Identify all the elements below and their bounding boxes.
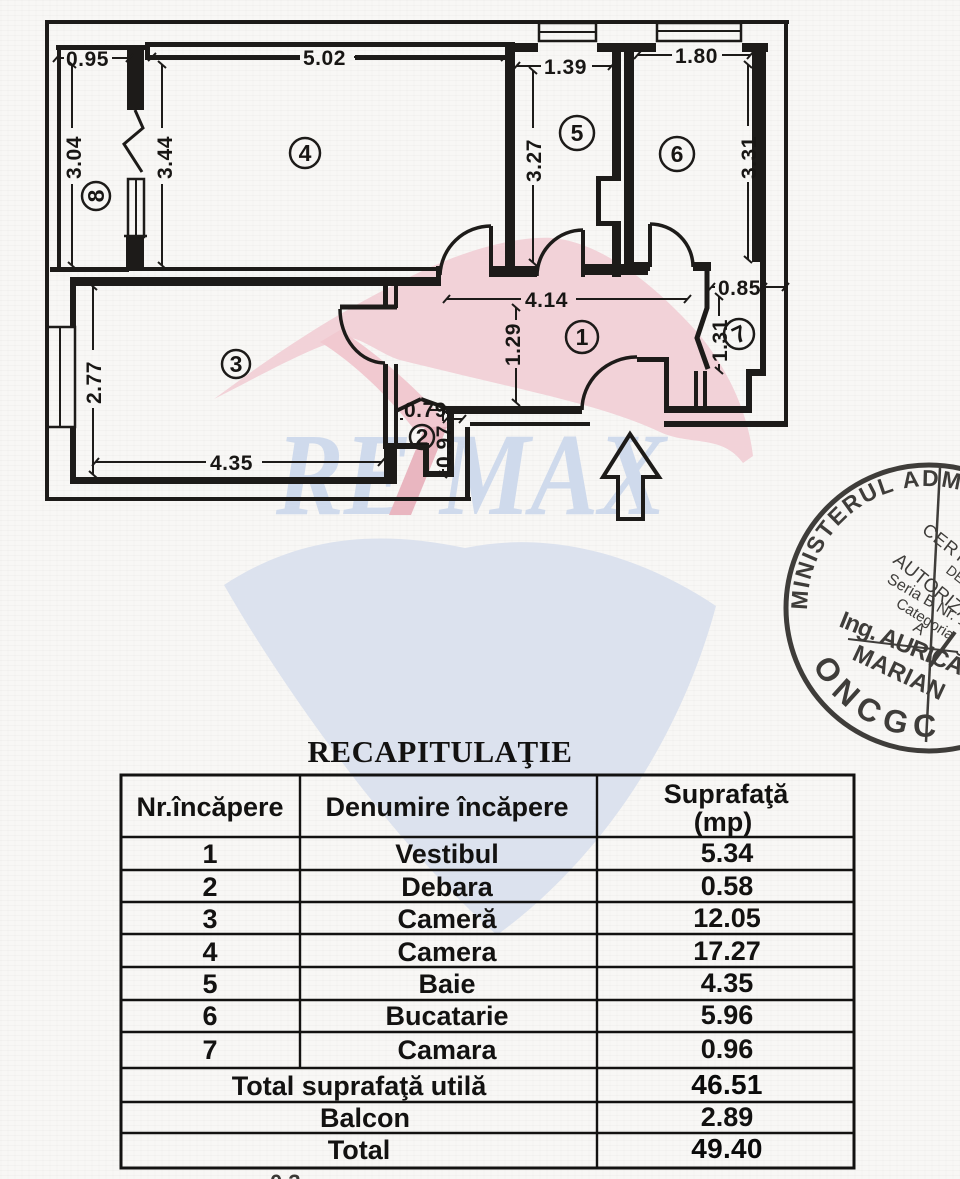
svg-text:1.29: 1.29 [502,323,525,366]
svg-text:6: 6 [671,141,684,167]
svg-text:6: 6 [202,1001,217,1031]
svg-text:Debara: Debara [401,872,494,902]
svg-text:Suprafaţă: Suprafaţă [664,779,790,809]
svg-text:Vestibul: Vestibul [395,839,499,869]
svg-text:2: 2 [416,424,429,450]
svg-text:12.05: 12.05 [693,903,761,933]
svg-text:1: 1 [576,324,589,350]
svg-text:0.95: 0.95 [66,48,109,71]
svg-text:RE/MAX: RE/MAX [275,409,669,540]
svg-text:3.04: 3.04 [63,136,86,179]
svg-text:17.27: 17.27 [693,936,761,966]
svg-text:3.27: 3.27 [523,139,546,182]
svg-text:Cameră: Cameră [397,904,497,934]
svg-text:3: 3 [202,904,217,934]
svg-text:5: 5 [202,969,217,999]
svg-text:5.96: 5.96 [701,1000,754,1030]
svg-text:0.96: 0.96 [701,1034,754,1064]
svg-text:1.80: 1.80 [675,45,718,68]
svg-text:Total: Total [328,1135,391,1165]
svg-text:3.44: 3.44 [154,136,177,179]
svg-text:0.97: 0.97 [433,425,456,468]
svg-text:4: 4 [202,937,217,967]
svg-text:Total suprafaţă utilă: Total suprafaţă utilă [232,1071,488,1101]
svg-text:49.40: 49.40 [691,1133,763,1164]
svg-text:1: 1 [202,839,217,869]
svg-text:46.51: 46.51 [691,1069,763,1100]
svg-text:Denumire încăpere: Denumire încăpere [325,792,568,822]
svg-text:0.85: 0.85 [718,277,761,300]
svg-text:Bucatarie: Bucatarie [385,1001,508,1031]
svg-text:0.79: 0.79 [404,399,447,422]
svg-text:2.89: 2.89 [701,1102,754,1132]
svg-text:0.58: 0.58 [701,871,754,901]
svg-text:5.34: 5.34 [701,838,754,868]
svg-text:2.77: 2.77 [83,361,106,404]
svg-text:RECAPITULAŢIE: RECAPITULAŢIE [308,734,573,769]
svg-text:4.14: 4.14 [525,289,568,312]
svg-text:4.35: 4.35 [210,452,253,475]
svg-text:4: 4 [299,140,312,166]
svg-text:2: 2 [202,872,217,902]
svg-text:Balcon: Balcon [320,1103,410,1133]
svg-text:5: 5 [571,120,584,146]
svg-text:4.35: 4.35 [701,968,754,998]
svg-text:Camera: Camera [397,937,497,967]
svg-text:Baie: Baie [418,969,475,999]
svg-text:7: 7 [202,1035,217,1065]
svg-text:Nr.încăpere: Nr.încăpere [136,792,283,822]
svg-text:5.02: 5.02 [303,47,346,70]
svg-text:0.3: 0.3 [270,1170,301,1179]
svg-text:Camara: Camara [397,1035,497,1065]
svg-text:3.31: 3.31 [738,136,761,179]
svg-text:8: 8 [83,189,109,202]
svg-text:3: 3 [230,351,243,377]
svg-text:DE: DE [943,562,960,587]
svg-text:1.39: 1.39 [544,56,587,79]
svg-text:(mp): (mp) [694,807,752,837]
